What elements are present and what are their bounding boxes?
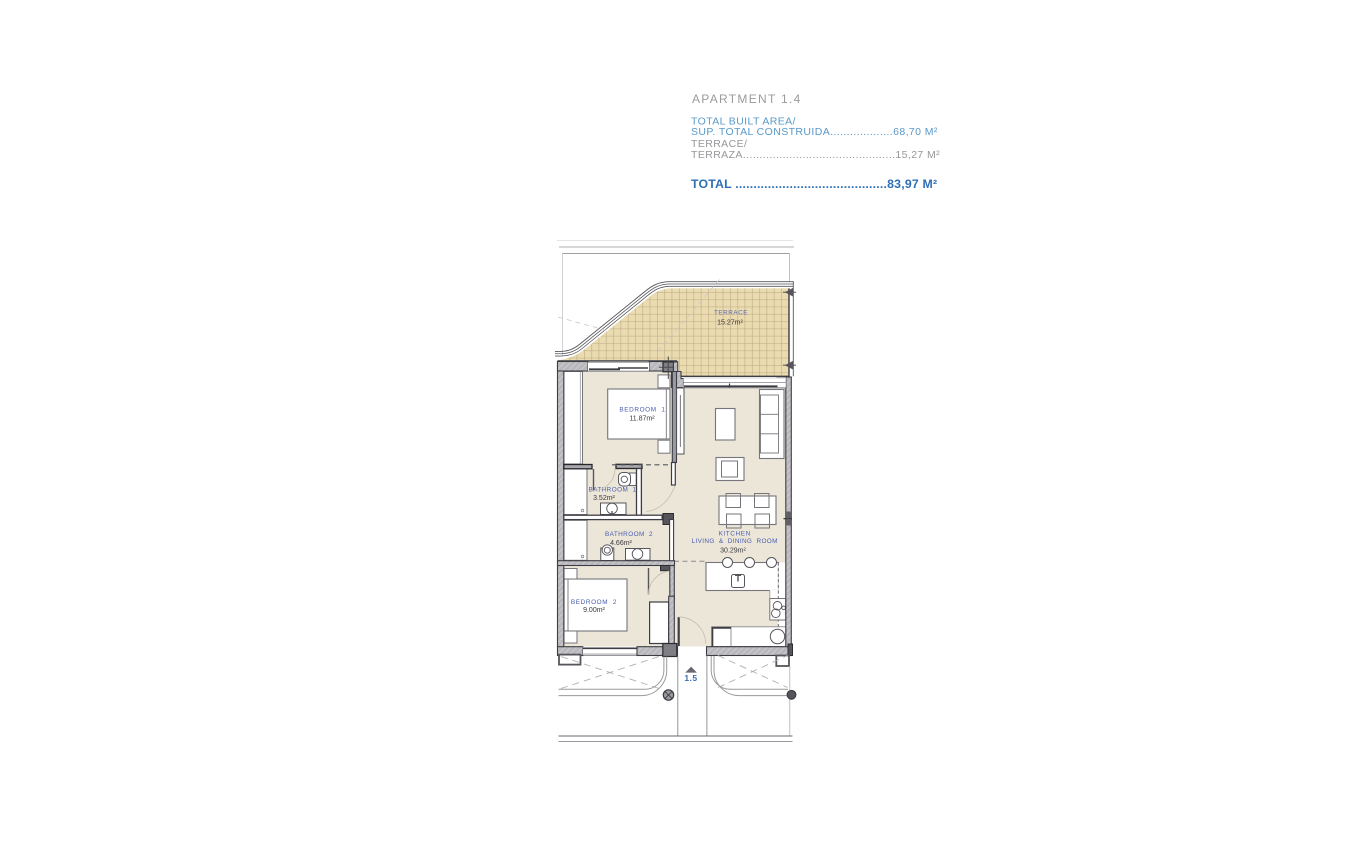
- svg-text:11.87m²: 11.87m²: [629, 416, 655, 423]
- svg-text:1.5: 1.5: [684, 673, 697, 683]
- svg-text:BEDROOM 2: BEDROOM 2: [571, 599, 617, 606]
- svg-text:30.29m²: 30.29m²: [720, 548, 746, 555]
- svg-text:BEDROOM 1: BEDROOM 1: [619, 406, 665, 413]
- svg-text:LIVING & DINING ROOM: LIVING & DINING ROOM: [692, 538, 778, 545]
- svg-text:3.52m²: 3.52m²: [593, 495, 615, 502]
- svg-text:APARTMENT 1.4: APARTMENT 1.4: [692, 92, 802, 106]
- svg-text:15.27m²: 15.27m²: [717, 320, 743, 327]
- svg-text:BATHROOM 2: BATHROOM 2: [605, 531, 653, 538]
- svg-text:SUP. TOTAL CONSTRUIDA.........: SUP. TOTAL CONSTRUIDA...................…: [691, 126, 938, 138]
- svg-text:TOTAL ........................: TOTAL ..................................…: [691, 177, 937, 191]
- svg-text:KITCHEN: KITCHEN: [719, 531, 751, 538]
- svg-text:TERRACE: TERRACE: [714, 310, 748, 317]
- svg-text:TERRAZA.......................: TERRAZA.................................…: [691, 149, 940, 161]
- svg-text:4.66m²: 4.66m²: [610, 540, 632, 547]
- svg-text:9.00m²: 9.00m²: [583, 607, 605, 614]
